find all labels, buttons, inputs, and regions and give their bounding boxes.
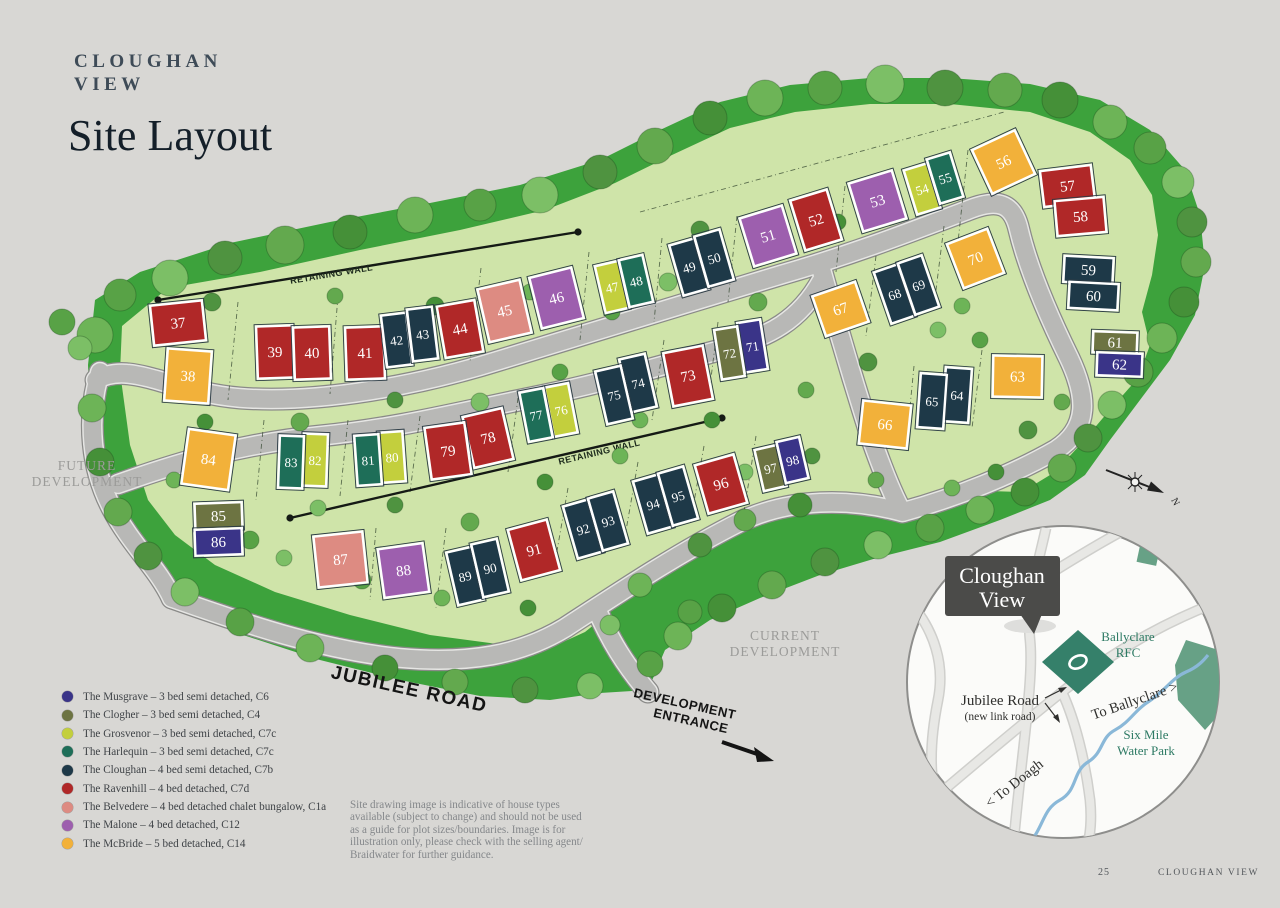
svg-text:86: 86 [211,535,227,552]
legend-item-mcbride: The McBride – 5 bed detached, C14 [62,838,326,850]
plot-40: 40 [291,324,333,381]
inset-map: Cloughan View Ballyclare RFC Jubilee Roa… [907,526,1232,845]
legend-label: The Belvedere – 4 bed detached chalet bu… [83,801,326,813]
plot-44: 44 [434,298,485,360]
svg-text:72: 72 [722,345,737,362]
legend-item-malone: The Malone – 4 bed detached, C12 [62,820,326,832]
svg-text:85: 85 [211,509,227,526]
plot-38: 38 [162,346,214,405]
legend-label: The Clogher – 3 bed semi detached, C4 [83,709,260,721]
disclaimer-line: available (subject to change) and should… [350,811,583,823]
svg-text:N: N [1168,496,1181,508]
plot-43: 43 [405,304,441,363]
legend-color-dot [62,783,73,794]
plot-41: 41 [343,324,387,381]
legend-label: The Harlequin – 3 bed semi detached, C7c [83,746,274,758]
legend-item-cloughan: The Cloughan – 4 bed semi detached, C7b [62,765,326,777]
plot-39: 39 [254,323,296,380]
svg-text:37: 37 [170,315,187,333]
svg-text:View: View [979,587,1025,612]
svg-text:66: 66 [877,417,894,435]
svg-text:81: 81 [361,453,375,469]
disclaimer-text: Site drawing image is indicative of hous… [350,799,583,861]
future-development-label: FUTURE DEVELOPMENT [22,458,152,490]
brochure-page: RETAINING WALL RETAINING WALL 3738394041… [0,0,1280,908]
disclaimer-line: Site drawing image is indicative of hous… [350,799,583,811]
svg-text:39: 39 [267,345,283,362]
plot-83: 83 [276,434,306,491]
rfc-label: Ballyclare [1101,629,1155,644]
legend-label: The McBride – 5 bed detached, C14 [83,838,245,850]
svg-text:82: 82 [308,453,322,468]
plot-81: 81 [352,432,384,488]
disclaimer-line: illustration only, please check with the… [350,836,583,848]
legend-label: The Malone – 4 bed detached, C12 [83,819,240,831]
svg-text:43: 43 [415,326,430,342]
svg-text:58: 58 [1072,209,1088,226]
plot-84: 84 [179,427,238,493]
plot-88: 88 [376,541,432,600]
svg-text:41: 41 [357,346,373,363]
legend-item-harlequin: The Harlequin – 3 bed semi detached, C7c [62,746,326,758]
plot-58: 58 [1052,195,1108,238]
compass-north-icon: N [1106,470,1181,508]
svg-text:63: 63 [1010,369,1025,385]
legend-color-dot [62,820,73,831]
svg-text:57: 57 [1059,178,1076,196]
svg-text:38: 38 [180,368,196,385]
legend-color-dot [62,802,73,813]
svg-text:60: 60 [1086,289,1102,306]
plot-66: 66 [857,398,914,450]
svg-text:80: 80 [385,450,399,466]
legend-item-grosvenor: The Grosvenor – 3 bed semi detached, C7c [62,728,326,740]
legend-label: The Musgrave – 3 bed semi detached, C6 [83,691,269,703]
brand-logo: CLOUGHAN VIEW [74,50,222,96]
plot-37: 37 [148,298,208,348]
plot-60: 60 [1066,280,1120,313]
plot-65: 65 [915,371,949,431]
legend-color-dot [62,728,73,739]
plot-87: 87 [311,529,369,589]
svg-text:Water Park: Water Park [1117,743,1175,758]
disclaimer-line: as a guide for plot sizes/boundaries. Im… [350,824,583,836]
legend-label: The Cloughan – 4 bed semi detached, C7b [83,764,273,776]
development-entrance-label: DEVELOPMENT ENTRANCE [632,685,774,762]
disclaimer-line: Braidwater for further guidance. [350,849,583,861]
legend-item-belvedere: The Belvedere – 4 bed detached chalet bu… [62,801,326,813]
svg-text:65: 65 [925,394,939,410]
svg-text:79: 79 [440,443,457,461]
svg-text:Cloughan: Cloughan [959,563,1045,588]
svg-text:(new link road): (new link road) [965,711,1036,723]
legend-color-dot [62,765,73,776]
svg-text:84: 84 [200,452,218,470]
plot-62: 62 [1095,350,1145,379]
svg-text:40: 40 [304,346,320,363]
current-development-label: CURRENT DEVELOPMENT [715,628,855,660]
house-type-legend: The Musgrave – 3 bed semi detached, C6Th… [62,691,326,857]
svg-text:83: 83 [284,455,298,470]
legend-color-dot [62,838,73,849]
legend-item-clogher: The Clogher – 3 bed semi detached, C4 [62,709,326,721]
page-number: 25 [1098,867,1110,878]
footer-brand: CLOUGHAN VIEW [1158,868,1259,878]
entrance-arrow-icon [754,747,774,762]
svg-text:88: 88 [395,563,412,581]
legend-label: The Ravenhill – 4 bed detached, C7d [83,783,249,795]
plot-63: 63 [991,354,1045,400]
svg-text:62: 62 [1112,357,1128,374]
svg-text:87: 87 [332,552,349,570]
legend-color-dot [62,746,73,757]
svg-text:73: 73 [679,368,697,387]
svg-text:59: 59 [1081,263,1097,280]
svg-text:61: 61 [1107,335,1123,352]
jubilee-road-inset-label: Jubilee Road [961,693,1039,709]
svg-text:42: 42 [389,332,404,348]
legend-color-dot [62,691,73,702]
legend-label: The Grosvenor – 3 bed semi detached, C7c [83,728,276,740]
water-park-label: Six Mile [1123,727,1168,742]
legend-item-ravenhill: The Ravenhill – 4 bed detached, C7d [62,783,326,795]
svg-text:RFC: RFC [1116,645,1141,660]
page-title: Site Layout [68,110,272,161]
legend-item-musgrave: The Musgrave – 3 bed semi detached, C6 [62,691,326,703]
plot-79: 79 [422,420,473,482]
svg-text:64: 64 [950,388,965,404]
plot-86: 86 [192,526,244,558]
legend-color-dot [62,710,73,721]
svg-text:71: 71 [745,338,760,355]
